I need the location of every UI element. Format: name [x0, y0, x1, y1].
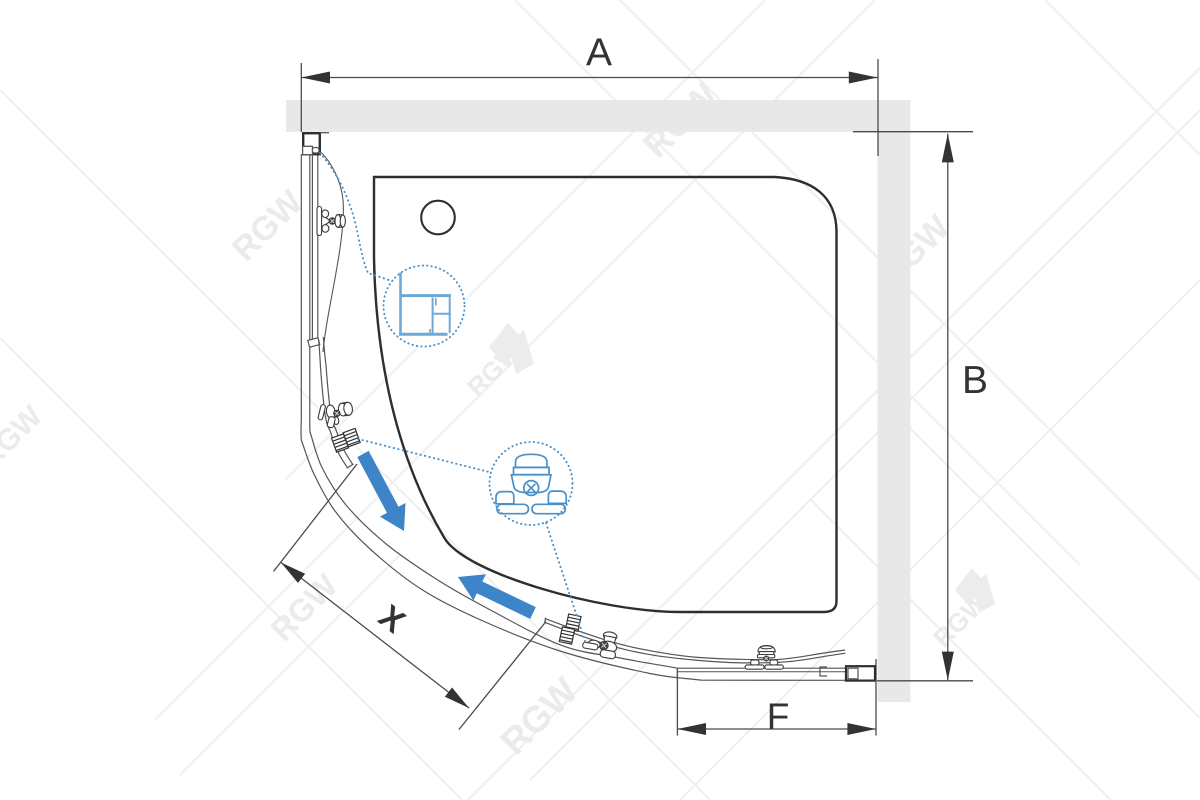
svg-text:A: A: [586, 32, 612, 75]
svg-text:B: B: [962, 359, 988, 402]
svg-text:F: F: [767, 696, 790, 737]
